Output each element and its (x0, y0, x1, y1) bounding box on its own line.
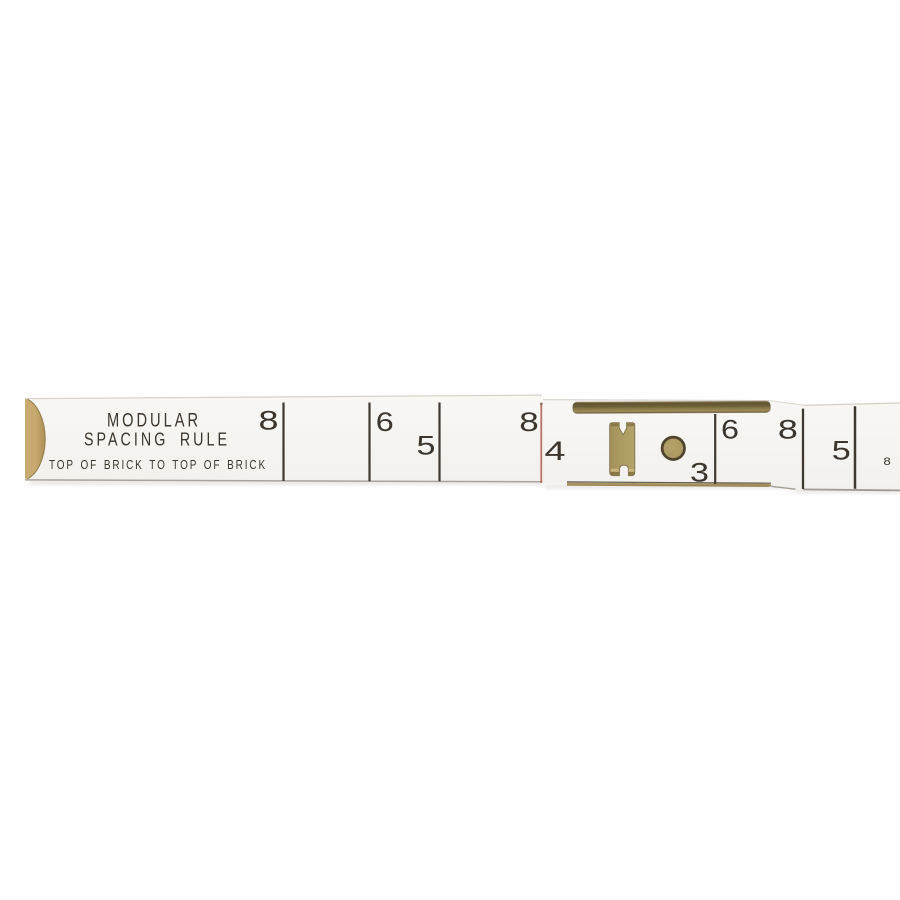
svg-text:5: 5 (832, 436, 851, 466)
svg-text:6: 6 (376, 407, 394, 437)
svg-text:4: 4 (545, 436, 566, 466)
svg-text:8: 8 (259, 406, 279, 436)
svg-text:8: 8 (883, 456, 890, 468)
svg-text:8: 8 (778, 415, 798, 445)
svg-text:3: 3 (690, 457, 709, 487)
svg-text:TOP OF BRICK TO TOP OF BRICK: TOP OF BRICK TO TOP OF BRICK (49, 457, 267, 472)
svg-text:6: 6 (721, 415, 739, 445)
svg-text:5: 5 (417, 430, 436, 460)
svg-text:SPACING RULE: SPACING RULE (84, 428, 230, 449)
svg-text:8: 8 (519, 407, 539, 437)
